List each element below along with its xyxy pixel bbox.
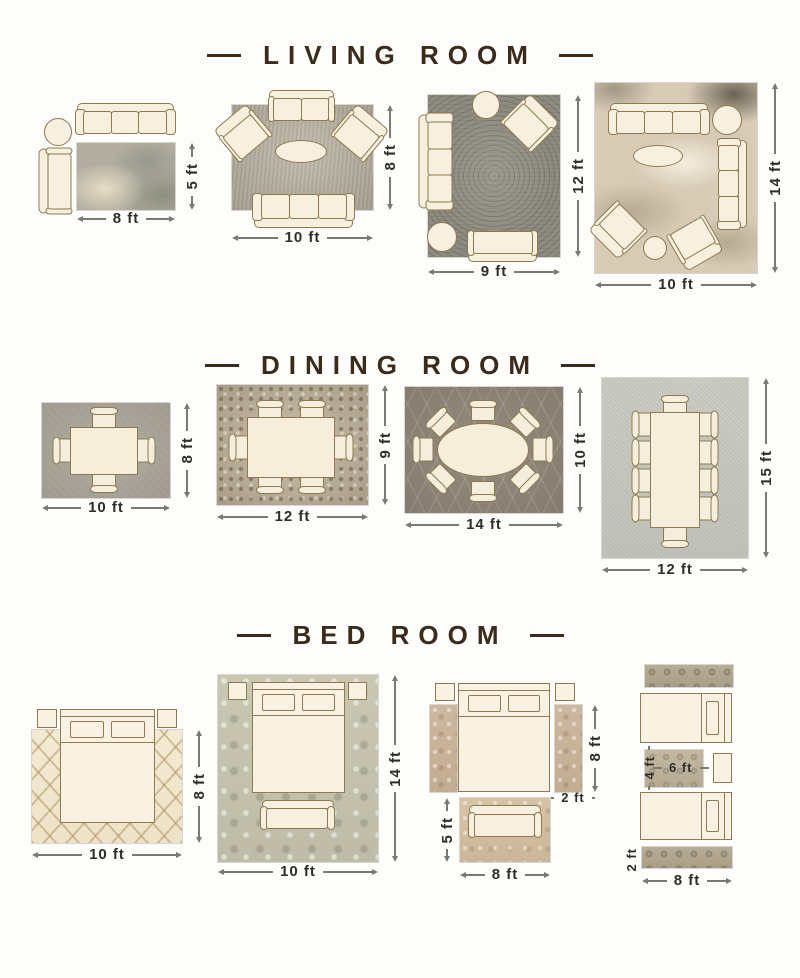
dim-height-label: 5 ft [184, 157, 201, 196]
pillow [262, 694, 295, 711]
dim-height: 8 ft [190, 730, 208, 843]
sofa-three-seat [419, 113, 454, 211]
dim-runner-width-label: 2 ft [624, 842, 639, 878]
nightstand [435, 683, 455, 701]
dim-width-label: 12 ft [650, 561, 700, 578]
dim-height: 9 ft [376, 385, 394, 505]
dim-runner-width: 2 ft [551, 790, 595, 806]
bedroom-bench [260, 800, 335, 830]
loveseat-sofa [467, 230, 538, 262]
oval-dining-table [437, 423, 529, 477]
pillow-cell [702, 694, 725, 742]
runner-rug [645, 665, 733, 687]
dim-height: 14 ft [386, 675, 404, 862]
sofa-seats [718, 146, 739, 221]
dim-width-label: 10 ft [651, 276, 701, 293]
runner-rug [642, 847, 732, 868]
section-title-text: LIVING ROOM [263, 40, 537, 71]
dim-small-rug-width: 6 ft [653, 760, 709, 776]
bench-seat [475, 814, 536, 837]
section-title-dining-room: DINING ROOM [0, 350, 800, 381]
pillow [302, 694, 335, 711]
dim-width: 14 ft [405, 517, 563, 533]
dining-chair [471, 481, 495, 496]
nightstand [348, 682, 367, 700]
sofa-seats [47, 154, 71, 209]
dining-table [247, 417, 335, 478]
pillow [111, 721, 145, 738]
dim-height-label: 14 ft [767, 154, 784, 202]
dining-chair [92, 413, 116, 428]
sofa-three-seat [608, 103, 710, 135]
dim-foot-rug-height: 5 ft [438, 798, 456, 862]
dim-height-label: 10 ft [572, 426, 589, 474]
bed [252, 682, 345, 793]
nightstand [228, 682, 247, 700]
sofa-back [254, 218, 353, 229]
dim-width: 12 ft [217, 509, 368, 525]
living-rug-8x5 [77, 143, 175, 210]
dim-height: 12 ft [569, 95, 587, 257]
chaise-sofa [39, 148, 73, 215]
pillow [468, 695, 501, 712]
sofa-seats [428, 121, 453, 201]
dim-foot-rug-width: 8 ft [460, 867, 550, 883]
dim-runner-length-label: 8 ft [667, 872, 708, 889]
dim-height-label: 8 ft [179, 431, 196, 470]
sofa-seats [84, 111, 167, 134]
title-dash [530, 634, 564, 637]
sofa-back [738, 140, 747, 228]
oval-coffee-table [633, 145, 683, 167]
section-title-living-room: LIVING ROOM [0, 40, 800, 71]
dim-width: 10 ft [42, 500, 170, 516]
dim-height-label: 9 ft [377, 426, 394, 465]
headboard [253, 683, 344, 690]
nightstand [713, 753, 732, 783]
dim-height: 10 ft [571, 387, 589, 513]
round-side-table [472, 91, 500, 119]
round-side-table [712, 105, 742, 135]
twin-bed [640, 693, 732, 743]
dim-width-label: 9 ft [474, 263, 515, 280]
rug-size-guide-poster: LIVING ROOM 8 ft 5 ft 10 ft 8 ft [0, 0, 800, 978]
dim-width-label: 10 ft [81, 499, 131, 516]
dim-width: 10 ft [232, 230, 373, 246]
dim-height: 14 ft [766, 83, 784, 273]
title-dash [207, 54, 241, 57]
oval-coffee-table [275, 140, 327, 163]
headboard [725, 793, 731, 839]
sofa-three-seat [717, 138, 747, 230]
dim-height-label: 12 ft [570, 152, 587, 200]
dim-runner-width-label: 2 ft [554, 790, 592, 805]
dim-width-label: 14 ft [459, 516, 509, 533]
sofa-back [468, 252, 536, 262]
pillow [706, 800, 719, 832]
loveseat-sofa [268, 90, 335, 122]
dining-table [650, 412, 700, 528]
dim-width: 10 ft [218, 864, 378, 880]
bed [60, 709, 155, 823]
dim-width: 10 ft [595, 277, 757, 293]
dim-runner-height: 8 ft [586, 705, 604, 792]
runner-rug [430, 705, 457, 792]
sofa-seats [617, 111, 701, 134]
title-dash [561, 364, 595, 367]
round-side-table [427, 222, 457, 252]
dim-height-label: 14 ft [387, 745, 404, 793]
pillow-row [459, 691, 549, 717]
twin-bed [640, 792, 732, 840]
bed [458, 683, 550, 792]
section-title-text: BED ROOM [293, 620, 508, 651]
dim-runner-length: 8 ft [642, 873, 732, 889]
dim-width: 12 ft [602, 562, 748, 578]
dining-chair [663, 527, 687, 542]
dim-foot-rug-height-label: 5 ft [439, 811, 456, 850]
dim-height: 8 ft [178, 403, 196, 498]
sofa-seats [274, 98, 329, 121]
round-side-table [643, 236, 667, 260]
bench-seat [267, 808, 329, 829]
nightstand [37, 709, 57, 728]
title-dash [205, 364, 239, 367]
dim-width-label: 10 ft [82, 846, 132, 863]
dim-height-label: 15 ft [758, 444, 775, 492]
dining-chair [471, 406, 495, 421]
dim-runner-width: 2 ft [622, 842, 640, 874]
dim-runner-height-label: 8 ft [587, 729, 604, 768]
pillow-row [253, 690, 344, 716]
pillow-row [61, 717, 154, 743]
nightstand [555, 683, 575, 701]
headboard [725, 694, 731, 742]
bed-body [641, 793, 702, 839]
bedroom-bench [468, 805, 542, 838]
dining-chair [419, 438, 434, 462]
headboard [61, 710, 154, 717]
dim-height: 8 ft [381, 105, 399, 210]
runner-rug [555, 705, 582, 792]
dim-height-label: 8 ft [191, 767, 208, 806]
title-dash [559, 54, 593, 57]
round-side-table [44, 118, 72, 146]
dim-height-label: 8 ft [382, 138, 399, 177]
dim-foot-rug-width-label: 8 ft [485, 866, 526, 883]
dim-width-label: 10 ft [278, 229, 328, 246]
dim-width: 9 ft [428, 264, 560, 280]
dining-table [70, 427, 138, 475]
pillow [508, 695, 541, 712]
dim-width: 10 ft [32, 847, 182, 863]
dim-width-label: 12 ft [268, 508, 318, 525]
sofa-seats [261, 194, 345, 219]
dim-width-label: 10 ft [273, 863, 323, 880]
pillow [706, 701, 719, 735]
section-title-bed-room: BED ROOM [0, 620, 800, 651]
section-title-text: DINING ROOM [261, 350, 539, 381]
dim-width: 8 ft [77, 211, 175, 227]
sofa-seats [473, 231, 531, 254]
title-dash [237, 634, 271, 637]
nightstand [157, 709, 177, 728]
dim-width-label: 8 ft [106, 210, 147, 227]
dim-height: 5 ft [183, 143, 201, 210]
dining-chair [533, 438, 548, 462]
headboard [459, 684, 549, 691]
pillow-cell [702, 793, 725, 839]
dim-height: 15 ft [757, 378, 775, 558]
dim-small-rug-width-label: 6 ft [662, 760, 700, 775]
sofa-three-seat [75, 103, 176, 135]
pillow [70, 721, 104, 738]
bed-body [641, 694, 702, 742]
sofa-three-seat [252, 193, 355, 228]
